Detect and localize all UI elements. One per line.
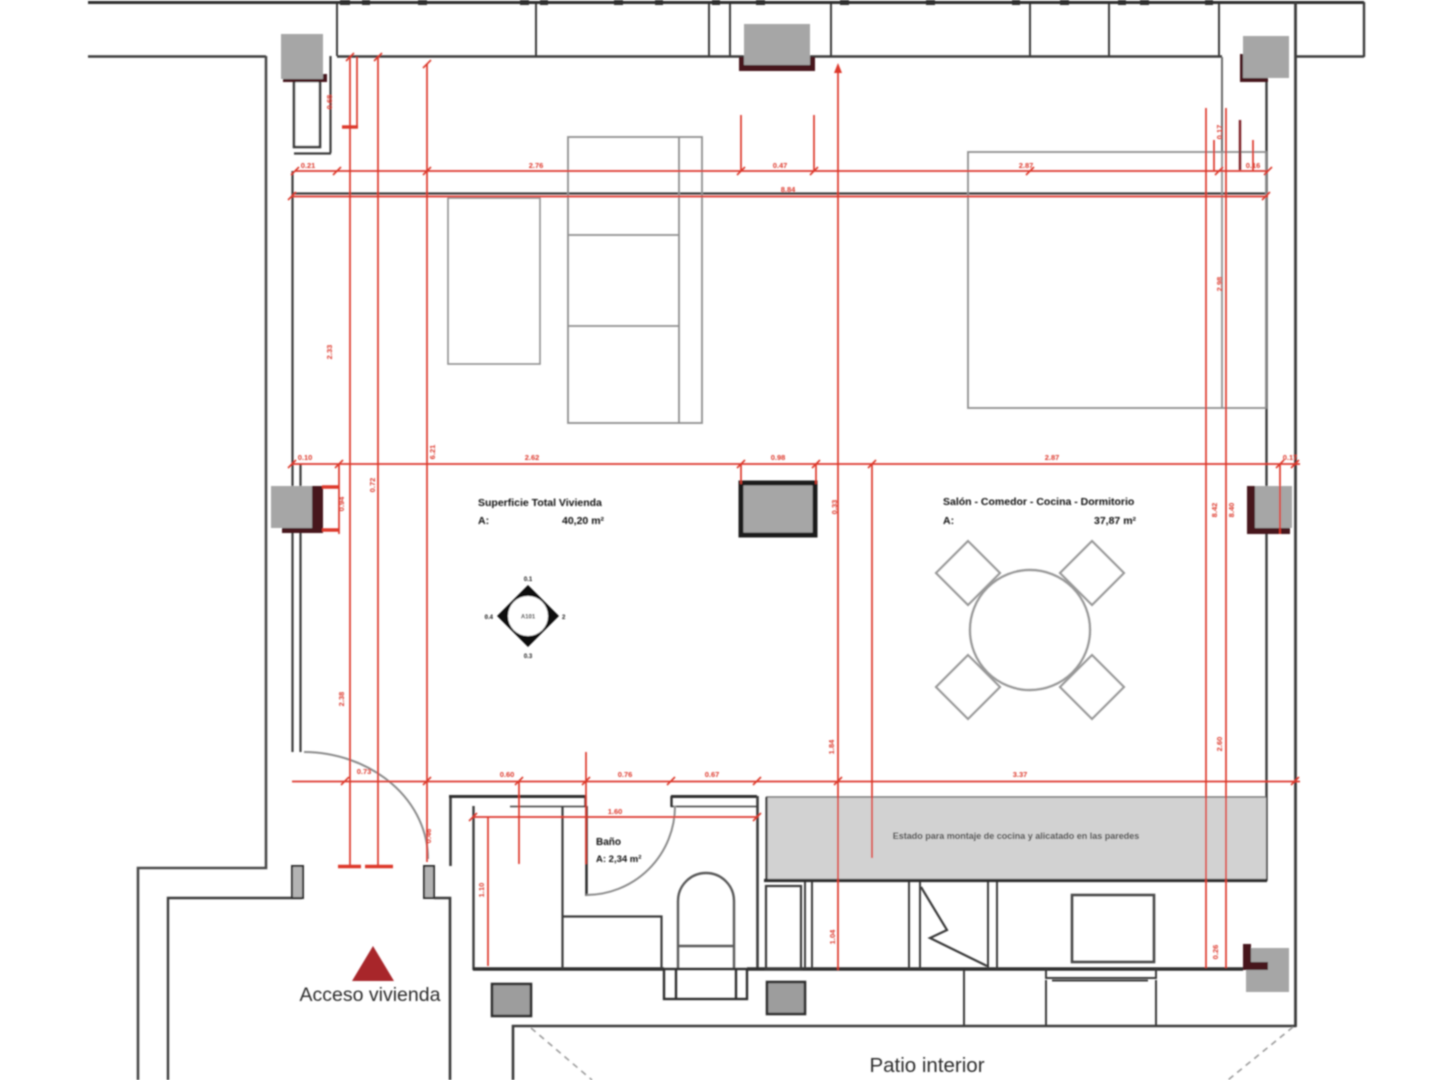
svg-text:0.72: 0.72: [368, 478, 377, 493]
svg-text:0.1: 0.1: [524, 577, 533, 583]
svg-text:Salón - Comedor - Cocina - Dor: Salón - Comedor - Cocina - Dormitorio: [943, 496, 1134, 508]
svg-text:0.76: 0.76: [618, 770, 633, 779]
svg-text:1.04: 1.04: [828, 929, 837, 944]
svg-text:0.73: 0.73: [357, 767, 372, 776]
svg-text:2.33: 2.33: [325, 345, 334, 360]
svg-text:3.37: 3.37: [1013, 770, 1028, 779]
svg-text:6.21: 6.21: [428, 445, 437, 460]
svg-text:2.62: 2.62: [525, 453, 540, 462]
svg-text:2.87: 2.87: [1019, 161, 1034, 170]
svg-text:0.16: 0.16: [1246, 161, 1261, 170]
svg-text:Patio interior: Patio interior: [869, 1054, 984, 1077]
svg-text:0.60: 0.60: [500, 770, 515, 779]
svg-text:1.60: 1.60: [608, 807, 623, 816]
svg-text:0.21: 0.21: [301, 161, 316, 170]
svg-text:Acceso vivienda: Acceso vivienda: [300, 984, 441, 1006]
svg-text:0.3: 0.3: [524, 654, 533, 660]
svg-text:2.87: 2.87: [1045, 453, 1060, 462]
svg-text:0.17: 0.17: [1283, 453, 1298, 462]
svg-text:2.60: 2.60: [1215, 737, 1224, 752]
svg-text:1.84: 1.84: [827, 739, 836, 754]
svg-text:2.98: 2.98: [1215, 277, 1224, 292]
svg-text:8.40: 8.40: [1227, 503, 1236, 518]
svg-text:40,20 m²: 40,20 m²: [562, 515, 605, 527]
svg-text:A: 2,34 m²: A: 2,34 m²: [596, 854, 641, 865]
svg-text:8.84: 8.84: [781, 185, 796, 194]
svg-text:0.4: 0.4: [485, 615, 494, 621]
svg-text:1.10: 1.10: [477, 883, 486, 898]
svg-text:2: 2: [562, 615, 566, 621]
svg-text:Estado para montaje de cocina: Estado para montaje de cocina y alicatad…: [893, 831, 1140, 841]
svg-text:0.67: 0.67: [705, 770, 720, 779]
svg-text:0.33: 0.33: [830, 500, 839, 515]
svg-text:0.26: 0.26: [1211, 945, 1220, 960]
svg-text:0.10: 0.10: [298, 453, 313, 462]
svg-text:0.68: 0.68: [325, 95, 334, 110]
svg-text:0.17: 0.17: [1215, 125, 1224, 140]
svg-text:Superficie Total Vivienda: Superficie Total Vivienda: [478, 497, 602, 509]
svg-text:0.94: 0.94: [337, 496, 346, 511]
svg-text:2.38: 2.38: [337, 692, 346, 707]
svg-text:0.46: 0.46: [424, 829, 433, 844]
svg-text:2.76: 2.76: [529, 161, 544, 170]
svg-text:0.98: 0.98: [771, 453, 786, 462]
svg-text:8.42: 8.42: [1210, 503, 1219, 518]
svg-text:Baño: Baño: [596, 837, 621, 848]
svg-text:A101: A101: [521, 615, 536, 621]
svg-text:A:: A:: [943, 515, 954, 527]
svg-text:A:: A:: [478, 515, 489, 527]
svg-text:37,87 m²: 37,87 m²: [1094, 515, 1137, 527]
svg-text:0.47: 0.47: [773, 161, 788, 170]
